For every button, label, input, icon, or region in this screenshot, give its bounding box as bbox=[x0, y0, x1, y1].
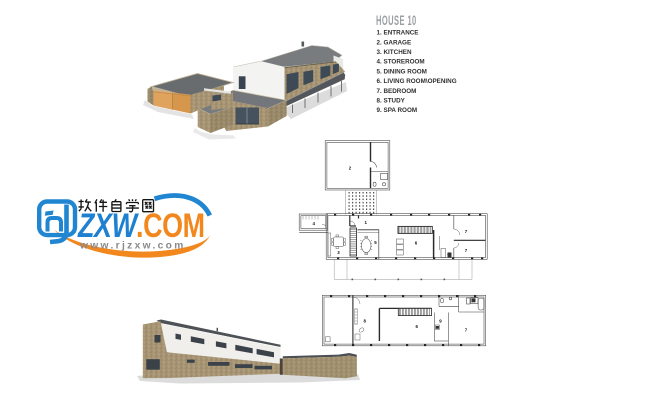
svg-text:3: 3 bbox=[337, 250, 340, 255]
svg-text:7: 7 bbox=[465, 248, 468, 253]
svg-text:www.rjzxw.com: www.rjzxw.com bbox=[79, 240, 186, 251]
svg-text:3. KITCHEN: 3. KITCHEN bbox=[377, 49, 412, 56]
svg-text:5. DINING ROOM: 5. DINING ROOM bbox=[377, 68, 427, 75]
svg-text:4. STOREROOM: 4. STOREROOM bbox=[377, 59, 425, 66]
svg-text:8: 8 bbox=[364, 319, 367, 324]
svg-text:1: 1 bbox=[365, 220, 368, 225]
svg-text:6: 6 bbox=[416, 324, 419, 329]
svg-text:5: 5 bbox=[374, 240, 377, 245]
svg-text:1. ENTRANCE: 1. ENTRANCE bbox=[377, 30, 419, 37]
svg-text:6. LIVING ROOM\OPENING: 6. LIVING ROOM\OPENING bbox=[377, 78, 457, 85]
svg-text:7: 7 bbox=[465, 229, 468, 234]
svg-text:7. BEDROOM: 7. BEDROOM bbox=[377, 88, 417, 95]
svg-text:9. SPA ROOM: 9. SPA ROOM bbox=[377, 107, 418, 114]
svg-text:ZXW: ZXW bbox=[77, 206, 139, 245]
svg-text:.COM: .COM bbox=[136, 206, 205, 245]
svg-text:2: 2 bbox=[349, 166, 352, 171]
svg-text:2. GARAGE: 2. GARAGE bbox=[377, 39, 412, 46]
svg-text:9: 9 bbox=[439, 319, 442, 324]
svg-text:6: 6 bbox=[415, 241, 418, 246]
svg-text:7: 7 bbox=[465, 328, 468, 333]
svg-text:8. STUDY: 8. STUDY bbox=[377, 98, 406, 105]
svg-text:4: 4 bbox=[313, 221, 316, 226]
svg-text:HOUSE 10: HOUSE 10 bbox=[376, 14, 417, 29]
